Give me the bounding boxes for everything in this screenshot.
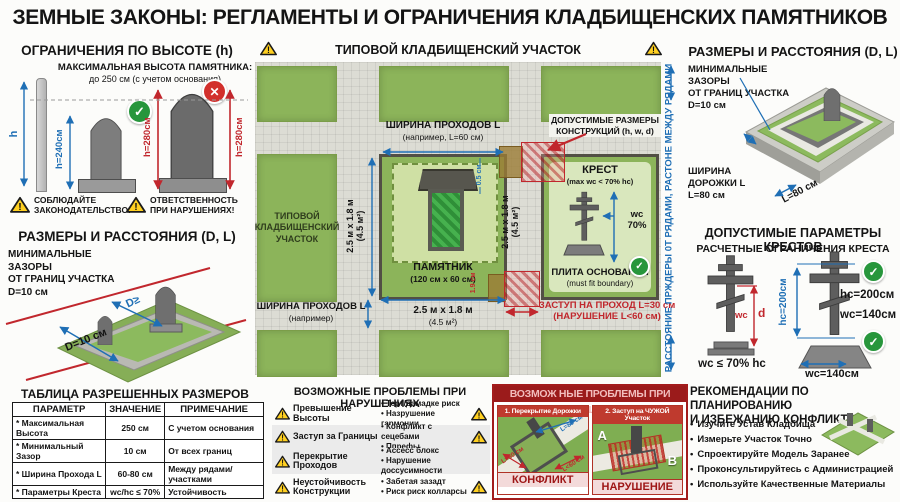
svg-text:!: ! bbox=[281, 458, 284, 467]
bullet-icon: • bbox=[381, 477, 384, 486]
warning-right-text: ОТВЕТСТВЕННОСТЬ ПРИ НАРУШЕНИЯХ! bbox=[150, 195, 254, 215]
height-limits-heading: ОГРАНИЧЕНИЯ ПО ВЫСОТЕ (h) bbox=[0, 43, 254, 58]
col-param: ПАРАМЕТР bbox=[13, 403, 106, 417]
cell-param: * Минимальный Зазор bbox=[13, 440, 106, 463]
violation-card-1: 1. Перекрытие Дорожки L=80 см L=80 см L<… bbox=[497, 405, 589, 495]
check-glyph: ✓ bbox=[868, 265, 878, 279]
warning-icon: ! bbox=[126, 196, 146, 213]
bullet-text: Нарушение доссусимности bbox=[381, 456, 442, 475]
svg-text:!: ! bbox=[652, 45, 655, 55]
recommendation-text: Проконсультируйтесь с Администрацией bbox=[697, 464, 893, 475]
cross-rule-text: wc ≤ 70% hc bbox=[690, 358, 774, 370]
recommendation-text: Изучите Устав Кладбища bbox=[697, 419, 815, 430]
passage-top-label: ШИРИНА ПРОХОДОВ L bbox=[379, 120, 507, 131]
problem-label: Заступ за Границы bbox=[293, 432, 381, 441]
size-table: ПАРАМЕТР ЗНАЧЕНИЕ ПРИМЕЧАНИЕ * Максималь… bbox=[12, 402, 264, 499]
typical-plot: ТИПОВОЙ КЛАДБИЩЕНСКИЙ УЧАСТОК bbox=[257, 154, 337, 302]
monument-ok-base bbox=[78, 179, 136, 193]
bullet-icon: • bbox=[381, 487, 384, 496]
stone bbox=[824, 89, 840, 122]
mini-stone bbox=[867, 419, 873, 432]
problem-label: Неустойчивость Конструкции bbox=[293, 478, 381, 497]
recommendation-item: •Проконсультируйтесь с Администрацией bbox=[690, 464, 900, 475]
grave-plot bbox=[257, 330, 337, 377]
grave-plot bbox=[379, 66, 509, 122]
bullet-icon: • bbox=[381, 399, 384, 408]
allowed-sizes-box: ДОПУСТИМЫЕ РАЗМЕРЫ КОНСТРУКЦИЙ (h, w, d) bbox=[549, 114, 661, 137]
violations-panel: ВОЗМОЖ НЫЕ ПРОБЛЕМЫ ПРИ НАРУШЕНИХ 1. Пер… bbox=[492, 384, 688, 500]
warning-left-text: СОБЛЮДАЙТЕ ЗАКОНОДАТЕЛЬСТВО! bbox=[34, 195, 138, 215]
hc-rotated-label: hc=200см bbox=[778, 270, 790, 334]
right-clearances-heading: РАЗМЕРЫ И РАССТОЯНИЯ (D, L) bbox=[686, 44, 900, 59]
cross-base bbox=[714, 342, 748, 348]
bad-height-dim-right: h=280см bbox=[235, 107, 245, 167]
warning-icon: ! bbox=[645, 41, 662, 56]
col-note: ПРИМЕЧАНИЕ bbox=[165, 403, 264, 417]
pole-height-label: h bbox=[8, 124, 20, 144]
check-icon: ✓ bbox=[862, 330, 885, 353]
d-label: d bbox=[758, 306, 765, 320]
bullet-icon: • bbox=[690, 479, 693, 490]
pointer-line bbox=[740, 78, 770, 130]
monument-cap bbox=[418, 169, 478, 191]
cross-small bbox=[698, 254, 762, 356]
recommendation-item: •Используйте Качественные Материалы bbox=[690, 479, 900, 490]
bullet-text: Конфликт с сецебами bbox=[381, 422, 432, 441]
plate-note: (must fit boundary) bbox=[544, 279, 656, 288]
gap-bottom-label: 1.9 см bbox=[470, 268, 478, 298]
gap-top-label: 0.5 см bbox=[476, 158, 484, 192]
cell-param: * Ширина Прохода L bbox=[13, 463, 106, 486]
violation-hatch bbox=[521, 142, 565, 182]
hc-value: hc=200см bbox=[840, 289, 894, 301]
bullet-line: • Терт/дамадке риск bbox=[381, 399, 468, 409]
bullet-line: • Забетая зазадт bbox=[381, 477, 468, 487]
grave-plot bbox=[257, 66, 337, 122]
bullet-icon: • bbox=[690, 434, 693, 445]
col-value: ЗНАЧЕНИЕ bbox=[106, 403, 165, 417]
problem-row: ! Перекрытие Проходов • Ассесс блокс • Н… bbox=[272, 448, 490, 474]
x-glyph: ✕ bbox=[209, 85, 219, 99]
bullet-icon: • bbox=[381, 422, 384, 431]
problem-label: Превышение Высоты bbox=[293, 404, 381, 423]
problem-bullets: • Забетая зазадт • Риск риск колларсы bbox=[381, 477, 468, 497]
violation-figure: A B bbox=[593, 424, 683, 479]
cell-note: С учетом основания bbox=[165, 417, 264, 440]
zone-a-label: A bbox=[598, 428, 607, 443]
check-icon: ✓ bbox=[862, 260, 885, 283]
warning-icon: ! bbox=[275, 481, 290, 494]
plot-dims-side: 2.5 м x 1.8 м (4.5 м²) bbox=[346, 174, 372, 278]
x-icon: ✕ bbox=[202, 79, 227, 104]
base-width-value: wc=140см bbox=[790, 368, 874, 380]
violation-card-title: 2. Заступ на ЧУЖОЙ Участок bbox=[593, 406, 683, 424]
bullet-text: Риск риск колларсы bbox=[386, 487, 467, 496]
zone-b-label: B bbox=[668, 453, 677, 468]
svg-text:!: ! bbox=[281, 484, 284, 493]
cell-value: wc/hc ≤ 70% bbox=[106, 486, 165, 499]
wc-value: wc=140см bbox=[840, 309, 896, 321]
table-row: * Максимальная Высота250 смС учетом осно… bbox=[13, 417, 264, 440]
bullet-line: • Ассесс блокс bbox=[381, 446, 490, 456]
violation-card-2: 2. Заступ на ЧУЖОЙ Участок A B НАРУШЕНИЕ bbox=[592, 405, 684, 495]
cross-shape bbox=[570, 192, 599, 240]
table-row: * Минимальный Зазор10 смОт всех границ bbox=[13, 440, 264, 463]
orthodox-cross bbox=[564, 191, 604, 257]
stone-pedestal bbox=[150, 324, 182, 332]
svg-text:!: ! bbox=[478, 483, 481, 493]
problem-row: ! Заступ за Границы • Конфликт с сецебам… bbox=[272, 425, 490, 448]
check-icon: ✓ bbox=[629, 256, 650, 277]
problem-row: ! Неустойчивость Конструкции • Забетая з… bbox=[272, 474, 490, 500]
cross-base bbox=[708, 349, 754, 355]
bullet-icon: • bbox=[690, 464, 693, 475]
warning-icon: ! bbox=[275, 455, 290, 468]
check-glyph: ✓ bbox=[635, 261, 643, 272]
measuring-pole bbox=[36, 78, 47, 192]
verdict-label: КОНФЛИКТ bbox=[498, 472, 588, 487]
violation-card-title: 1. Перекрытие Дорожки bbox=[498, 406, 588, 417]
left-clearances-heading: РАЗМЕРЫ И РАССТОЯНИЯ (D, L) bbox=[0, 229, 254, 244]
check-glyph: ✓ bbox=[868, 335, 878, 349]
table-header-row: ПАРАМЕТР ЗНАЧЕНИЕ ПРИМЕЧАНИЕ bbox=[13, 403, 264, 417]
cross-width-label: wc 70% bbox=[620, 209, 654, 231]
recommendation-text: Используйте Качественные Материалы bbox=[697, 479, 885, 490]
monument-bed bbox=[432, 193, 460, 247]
max-height-title: МАКСИМАЛЬНАЯ ВЫСОТА ПАМЯТНИКА: bbox=[56, 62, 254, 73]
ok-height-dim: h=240см bbox=[55, 119, 65, 179]
monument-ok bbox=[84, 114, 128, 180]
infographic-poster: ЗЕМНЫЕ ЗАКОНЫ: РЕГЛАМЕНТЫ И ОГРАНИЧЕНИЯ … bbox=[0, 0, 900, 502]
warning-icon: ! bbox=[471, 407, 487, 421]
typical-plot-label: ТИПОВОЙ КЛАДБИЩЕНСКИЙ УЧАСТОК bbox=[255, 211, 340, 245]
map-heading: ТИПОВОЙ КЛАДБИЩЕНСКИЙ УЧАСТОК bbox=[255, 43, 661, 57]
passage-bottom-example: (например) bbox=[256, 313, 366, 323]
warning-icon: ! bbox=[10, 196, 30, 213]
svg-text:!: ! bbox=[134, 202, 137, 213]
cell-value: 250 см bbox=[106, 417, 165, 440]
large-stone bbox=[156, 287, 176, 327]
warning-icon: ! bbox=[471, 480, 487, 494]
svg-text:!: ! bbox=[281, 411, 284, 420]
cross-base bbox=[799, 346, 871, 368]
violation-figure: L=80 см L=80 см L<60 см bbox=[498, 417, 588, 472]
cell-value: 10 см bbox=[106, 440, 165, 463]
plot-dims-bottom2: (4.5 м²) bbox=[379, 317, 507, 327]
max-height-value: до 250 см (с учетом основания) bbox=[56, 74, 254, 84]
mini-plot-graphic bbox=[818, 405, 898, 461]
bullet-text: Забетая зазадт bbox=[386, 477, 446, 486]
cell-param: * Параметры Креста bbox=[13, 486, 106, 499]
passage-top-example: (например, L=60 см) bbox=[379, 132, 507, 142]
warning-icon: ! bbox=[275, 407, 290, 420]
path-width-note: ШИРИНА ДОРОЖКИ L L=80 см bbox=[688, 166, 758, 202]
cross-mound bbox=[564, 245, 604, 255]
problem-bullets: • Ассесс блокс • Нарушение доссусимности bbox=[381, 446, 490, 476]
page-title: ЗЕМНЫЕ ЗАКОНЫ: РЕГЛАМЕНТЫ И ОГРАНИЧЕНИЯ … bbox=[0, 6, 900, 30]
violations-panel-heading: ВОЗМОЖ НЫЕ ПРОБЛЕМЫ ПРИ НАРУШЕНИХ bbox=[494, 386, 686, 402]
svg-text:!: ! bbox=[478, 433, 481, 443]
verdict-label: НАРУШЕНИЕ bbox=[593, 479, 683, 494]
cell-note: Устойчивость bbox=[165, 486, 264, 499]
plot-isometric-right bbox=[738, 70, 900, 212]
table-row: * Ширина Прохода L60-80 смМежду рядами/у… bbox=[13, 463, 264, 486]
warning-icon: ! bbox=[275, 430, 290, 443]
cell-param: * Максимальная Высота bbox=[13, 417, 106, 440]
bullet-text: Терт/дамадке риск bbox=[386, 399, 460, 408]
bad-height-dim-left: h=280см bbox=[143, 107, 153, 167]
violation-callout: ЗАСТУП НА ПРОХОД L=30 см (НАРУШЕНИЕ L<60… bbox=[536, 300, 678, 323]
grave-plot bbox=[541, 330, 661, 377]
plot-dims-side2: 2.5 м x 1.8 м (4.5 м²) bbox=[501, 170, 527, 274]
bullet-icon: • bbox=[690, 449, 693, 460]
table-row: * Параметры Крестаwc/hc ≤ 70%Устойчивост… bbox=[13, 486, 264, 499]
cell-value: 60-80 см bbox=[106, 463, 165, 486]
warning-icon: ! bbox=[471, 430, 487, 444]
wc-label: wc bbox=[735, 310, 748, 321]
size-table-heading: ТАБЛИЦА РАЗРЕШЕННЫХ РАЗМЕРОВ bbox=[6, 387, 264, 401]
plot-dims-bottom: 2.5 м x 1.8 м bbox=[379, 305, 507, 316]
bullet-line: • Нарушение доссусимности bbox=[381, 456, 490, 476]
cell-note: От всех границ bbox=[165, 440, 264, 463]
bullet-icon: • bbox=[381, 409, 384, 418]
monument-size: (120 см x 60 см) bbox=[382, 274, 504, 284]
row-spacing-note: РАССТОЯНИЕ ПРЖДЕРЫ 0Т РЯДАМИ, РАСТОНЕ МЕ… bbox=[665, 62, 679, 375]
bullet-icon: • bbox=[381, 456, 384, 465]
problem-label: Перекрытие Проходов bbox=[293, 452, 381, 471]
monument-bad-base bbox=[159, 178, 227, 193]
passage-bottom-label: ШИРИНА ПРОХОДОВ L bbox=[256, 301, 366, 312]
bullet-icon: • bbox=[381, 446, 384, 455]
bullet-icon: • bbox=[690, 419, 693, 430]
bullet-line: • Конфликт с сецебами bbox=[381, 422, 468, 442]
plot-isometric-left bbox=[0, 262, 254, 384]
svg-text:!: ! bbox=[281, 434, 284, 443]
svg-text:!: ! bbox=[478, 410, 481, 420]
svg-text:!: ! bbox=[18, 202, 21, 213]
recommendation-text: Измерьте Участок Точно bbox=[697, 434, 812, 445]
cemetery-map: ТИПОВОЙ КЛАДБИЩЕНСКИЙ УЧАСТОК ПАМЯТНИК (… bbox=[255, 62, 661, 375]
mini-stone bbox=[847, 413, 853, 426]
monument-name: ПАМЯТНИК bbox=[382, 261, 504, 273]
grave-plot bbox=[379, 330, 509, 377]
bullet-line: • Риск риск колларсы bbox=[381, 487, 468, 497]
cell-note: Между рядами/участками bbox=[165, 463, 264, 486]
bullet-text: Ассесс блокс bbox=[386, 446, 439, 455]
stone bbox=[631, 426, 642, 453]
violation-hatch bbox=[504, 271, 540, 307]
